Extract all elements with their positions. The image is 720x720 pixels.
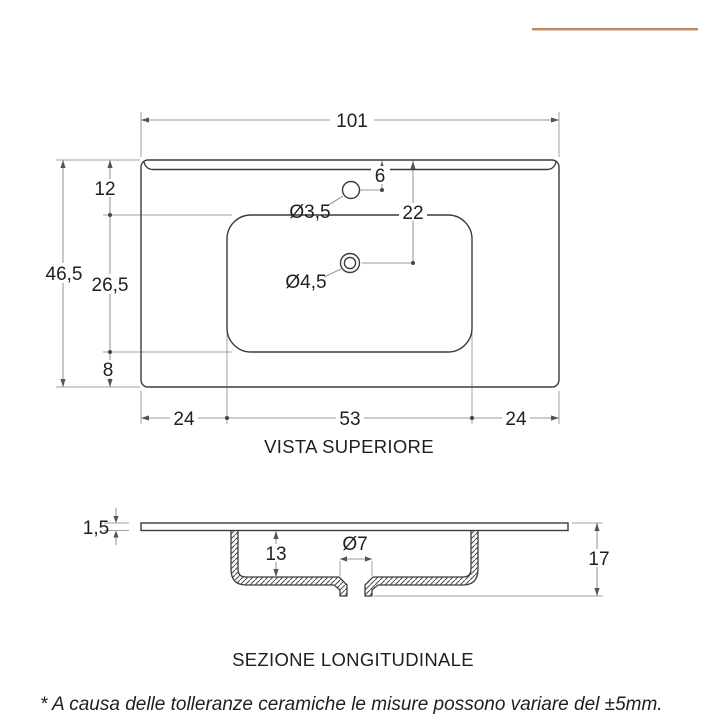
top-view-dimension-lines xyxy=(63,120,559,418)
top-view-caption: VISTA SUPERIORE xyxy=(264,436,434,457)
section-basin-wall-right xyxy=(365,530,478,596)
section-text-masks xyxy=(262,544,614,567)
top-view: 101 46,5 12 26,5 8 6 Ø3,5 22 Ø4,5 24 53 … xyxy=(43,111,559,457)
dim-section-drain-diameter: Ø7 xyxy=(342,534,367,555)
section-basin-wall-left xyxy=(231,530,347,596)
dim-basin-width: 53 xyxy=(339,409,360,430)
brand-accent-line xyxy=(532,28,698,30)
dim-faucet-hole-diameter: Ø3,5 xyxy=(289,202,330,223)
drain-hole xyxy=(341,254,360,273)
tolerance-note: * A causa delle tolleranze ceramiche le … xyxy=(40,694,663,715)
dim-faucet-offset: 6 xyxy=(375,166,386,187)
dim-drain-hole-diameter: Ø4,5 xyxy=(285,272,326,293)
dim-back-edge-to-basin: 12 xyxy=(94,179,115,200)
dim-section-total-height: 17 xyxy=(588,549,609,570)
top-view-text-masks xyxy=(43,111,530,427)
dim-basin-inner-depth: 13 xyxy=(265,544,286,565)
technical-drawing-page: 101 46,5 12 26,5 8 6 Ø3,5 22 Ø4,5 24 53 … xyxy=(0,0,720,720)
dim-left-margin: 24 xyxy=(173,409,195,430)
dim-right-margin: 24 xyxy=(505,409,527,430)
top-view-extension-lines xyxy=(56,112,559,424)
dim-total-depth: 46,5 xyxy=(46,264,83,285)
sink-back-edge-line xyxy=(144,162,556,170)
dim-total-width: 101 xyxy=(336,111,368,132)
drawing-canvas: 101 46,5 12 26,5 8 6 Ø3,5 22 Ø4,5 24 53 … xyxy=(0,0,720,720)
sink-outline xyxy=(141,160,559,387)
dim-top-thickness: 1,5 xyxy=(83,518,109,539)
section-countertop-slab xyxy=(141,523,568,531)
top-view-arrows xyxy=(60,117,559,420)
basin-outline xyxy=(227,215,472,352)
section-view: 1,5 13 Ø7 17 SEZIONE LONGITUDINALE xyxy=(83,508,614,670)
dim-basin-span: 26,5 xyxy=(92,275,129,296)
section-view-caption: SEZIONE LONGITUDINALE xyxy=(232,649,474,670)
dim-drain-offset: 22 xyxy=(402,203,423,224)
faucet-hole xyxy=(343,182,360,199)
dim-basin-to-front: 8 xyxy=(103,360,114,381)
